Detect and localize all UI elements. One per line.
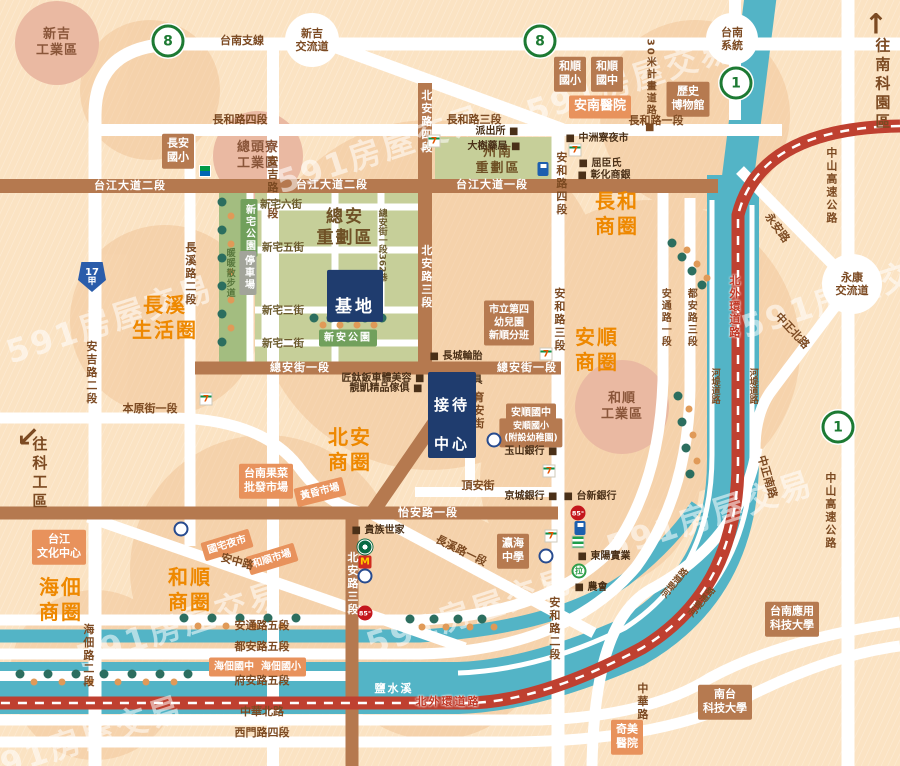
road-label: 頂安街 <box>462 479 495 493</box>
tree-icon <box>218 338 227 347</box>
district-label: 海佃 商圈 <box>39 575 83 625</box>
tree-icon <box>674 392 683 401</box>
tree-icon <box>668 239 677 248</box>
poi-text: ■ 彰化商銀 <box>578 170 631 183</box>
tree-icon <box>370 322 377 329</box>
tree-icon <box>698 281 707 290</box>
road-label: 北安路三段 <box>345 552 359 617</box>
road-label: 台南支線 <box>220 34 264 48</box>
tree-icon <box>228 213 235 220</box>
road-label: 安和路三段 <box>552 288 566 353</box>
freeway-shield-icon: 1 <box>822 411 855 444</box>
building-box: 和順 國小 <box>554 57 586 92</box>
7-eleven-icon: 7 <box>569 144 582 157</box>
7-eleven-icon: 7 <box>540 348 553 361</box>
bank-icon <box>487 433 502 448</box>
tree-icon <box>336 322 343 329</box>
road-label: 台江大道一段 <box>456 178 528 192</box>
road-label: 中山高速公路 <box>824 147 838 225</box>
road-label: 中山高速公路 <box>823 472 837 550</box>
site-marker: 基地 <box>327 270 383 322</box>
tree-icon <box>171 679 178 686</box>
tree-icon <box>115 679 122 686</box>
tree-icon <box>128 670 137 679</box>
poi-text: 京城銀行 ■ <box>505 491 558 504</box>
tree-icon <box>228 241 235 248</box>
poi-text: ■ 屈臣氏 <box>579 158 622 171</box>
tree-icon <box>678 418 687 427</box>
road-label: 30米計畫道路 ■ <box>643 39 656 135</box>
industrial-area-label: 和順 工業區 <box>601 391 643 424</box>
tree-icon <box>59 679 66 686</box>
tree-icon <box>143 679 150 686</box>
road-label: 安中路 <box>219 551 254 573</box>
road-label: 新宅六街 <box>260 198 302 211</box>
road-label: 安吉路二段 <box>84 341 98 406</box>
zone-title: 總安 重劃區 <box>317 207 374 250</box>
poi-text: ■ 長城輪胎 <box>430 351 483 364</box>
tree-icon <box>686 470 695 479</box>
7-eleven-icon: 7 <box>543 465 556 478</box>
poi-text: 大樹藥局 ■ <box>468 141 521 154</box>
district-label: 和順 商圈 <box>168 565 212 615</box>
mcdonalds-icon: M <box>359 556 372 569</box>
map-canvas[interactable]: 591房屋交易591房屋交易591房屋交易591房屋交易591房屋交易591房屋… <box>0 0 900 766</box>
road-label: 海佃路二段 <box>81 624 95 689</box>
tree-icon <box>690 432 697 439</box>
bank-icon <box>539 549 554 564</box>
familymart-icon <box>199 165 211 177</box>
reception-label-line1: 接待 <box>434 396 470 414</box>
road-label: 北外環道路 <box>727 275 741 340</box>
tree-icon <box>156 670 165 679</box>
freeway-shield-icon: 1 <box>720 67 753 100</box>
road-label: 本原街一段 <box>123 402 178 416</box>
tree-icon <box>72 670 81 679</box>
walkway-label: 暖暖散步道 <box>223 248 234 298</box>
road-label: 安和路四段 <box>554 152 568 217</box>
tree-icon <box>688 267 697 276</box>
road-label: 都安路三段 <box>684 288 697 348</box>
poi-text: ■ 農會 <box>575 582 608 595</box>
7-eleven-icon: 7 <box>545 530 558 543</box>
laya-burger-icon: 拉 <box>572 564 587 579</box>
road-label: 新宅五街 <box>262 241 304 254</box>
market-label: 黃昏市場 <box>293 477 346 508</box>
provincial-shield-icon: 17甲 <box>78 262 106 292</box>
road-label: 總安街一段 <box>497 361 557 375</box>
85cafe-icon: 85° <box>358 606 373 621</box>
building-box: 瀛海 中學 <box>497 534 529 569</box>
tree-icon <box>430 615 439 624</box>
road-label: 台江大道二段 <box>296 178 368 192</box>
poi-text: ■ 台新銀行 <box>564 491 617 504</box>
road-label: 河堤道路 <box>746 368 757 404</box>
tree-icon <box>443 624 450 631</box>
road-label: 長溪路二段 <box>183 242 197 307</box>
road-label: 安通路五段 <box>235 619 290 633</box>
starbucks-icon <box>358 540 373 555</box>
tree-icon <box>682 444 691 453</box>
industrial-area-label: 新吉 工業區 <box>36 27 78 60</box>
building-box: 安順國小 (附設幼稚園) <box>499 418 562 447</box>
tree-icon <box>478 615 487 624</box>
reception-label-line2: 中心 <box>434 435 470 453</box>
interchange-circle: 永康 交流道 <box>822 254 882 314</box>
tree-icon <box>694 458 701 465</box>
tree-icon <box>467 624 474 631</box>
7-eleven-icon: 7 <box>428 135 441 148</box>
road-label: 長溪路一段 <box>433 533 488 569</box>
road-label: 鹽水溪 <box>375 682 414 696</box>
gas-station-icon <box>538 162 549 176</box>
poi-text: ■ 貴族世家 <box>352 525 405 538</box>
tree-icon <box>310 314 319 323</box>
gas-station-icon <box>575 521 586 535</box>
building-box: 長安 國小 <box>162 134 194 169</box>
tree-icon <box>218 198 227 207</box>
poi-text: 玉山銀行 ■ <box>505 446 558 459</box>
tree-icon <box>184 670 193 679</box>
tree-icon <box>195 623 202 630</box>
road-label: 中華路 <box>635 683 649 722</box>
poi-text: 靚凱精品傢俱 ■ <box>350 383 423 396</box>
building-box: 台江 文化中心 <box>32 530 86 565</box>
freeway-shield-icon: 8 <box>524 25 557 58</box>
building-box: 南台 科技大學 <box>698 685 752 720</box>
park-label: 新宅公園 <box>241 199 258 257</box>
road-label: 北安路三段 <box>419 245 433 310</box>
district-label: 北安 商圈 <box>328 425 372 475</box>
tree-icon <box>44 670 53 679</box>
road-label: 府安路五段 <box>235 674 290 688</box>
road-label: 河堤道路 <box>708 368 719 404</box>
tree-icon <box>686 406 693 413</box>
road-label: 北外環道路 <box>416 695 481 709</box>
road-label: 河堤道路 <box>687 586 719 621</box>
bank-icon <box>174 522 189 537</box>
tree-icon <box>678 253 687 262</box>
freeway-shield-icon: 8 <box>152 25 185 58</box>
road-label: 安通路一段 <box>658 288 671 348</box>
park-label: 新安公園 <box>319 330 377 347</box>
tree-icon <box>228 325 235 332</box>
road-label: 總安街一段 <box>270 361 330 375</box>
tree-icon <box>419 624 426 631</box>
building-box: 台南應用 科技大學 <box>765 602 819 637</box>
park-label: 停車場 <box>240 251 257 295</box>
7-eleven-icon: 7 <box>200 393 213 406</box>
road-label: 永安路 <box>762 211 793 246</box>
road-label: 都安路五段 <box>235 640 290 654</box>
road-label: 長和路四段 <box>213 113 268 127</box>
85cafe-icon: 85° <box>571 506 586 521</box>
direction-arrow-icon: ↑ <box>864 7 887 42</box>
watermark: 591房屋交易 <box>0 688 189 766</box>
shield-number: 17 <box>85 268 99 278</box>
road-label: 河堤道路 <box>660 567 692 602</box>
building-box: 市立第四 幼兒園 新順分班 <box>484 301 534 346</box>
district-label: 長和 商圈 <box>595 189 639 239</box>
tree-icon <box>218 226 227 235</box>
direction-label: 往科工區 <box>30 436 49 512</box>
road-label: 西門路四段 <box>235 726 290 740</box>
tree-icon <box>292 614 301 623</box>
tree-icon <box>353 322 360 329</box>
poi-text: ■ 東陽實業 <box>578 551 631 564</box>
pxmart-icon <box>572 536 585 549</box>
tree-icon <box>31 679 38 686</box>
road-label: 怡安路一段 <box>398 506 458 520</box>
interchange-circle: 新吉 交流道 <box>285 13 339 67</box>
poi-text: 派出所 ■ <box>476 126 519 139</box>
road-label: 新宅二街 <box>262 337 304 350</box>
tree-icon <box>16 670 25 679</box>
building-box: 歷史 博物館 <box>667 82 710 117</box>
road-label: 中華北路 <box>240 705 284 719</box>
tree-icon <box>319 322 326 329</box>
district-label: 安順 商圈 <box>575 325 619 375</box>
building-box: 安南醫院 <box>569 96 631 119</box>
road-label: 台江大道二段 <box>94 179 166 193</box>
bank-icon <box>358 569 373 584</box>
tree-icon <box>100 670 109 679</box>
tree-icon <box>218 310 227 319</box>
road-label: 新宅三街 <box>262 304 304 317</box>
building-box: 奇美 醫院 <box>611 720 643 755</box>
building-box: 和順 國中 <box>591 57 623 92</box>
tree-icon <box>406 615 415 624</box>
shield-suffix: 甲 <box>87 278 96 287</box>
tree-icon <box>223 623 230 630</box>
watermark: 591房屋交易 <box>601 463 819 568</box>
interchange-circle: 台南 系統 <box>706 13 758 65</box>
tree-icon <box>454 615 463 624</box>
reception-center-marker: 接待 中心 <box>428 372 476 458</box>
road-label: 長和路一段 <box>629 114 684 128</box>
road-label: 安和路二段 <box>547 597 561 662</box>
site-label: 基地 <box>335 297 375 317</box>
direction-label: 往南科園區 <box>873 38 892 133</box>
tree-icon <box>491 624 498 631</box>
building-box: 台南果菜 批發市場 <box>239 464 293 499</box>
